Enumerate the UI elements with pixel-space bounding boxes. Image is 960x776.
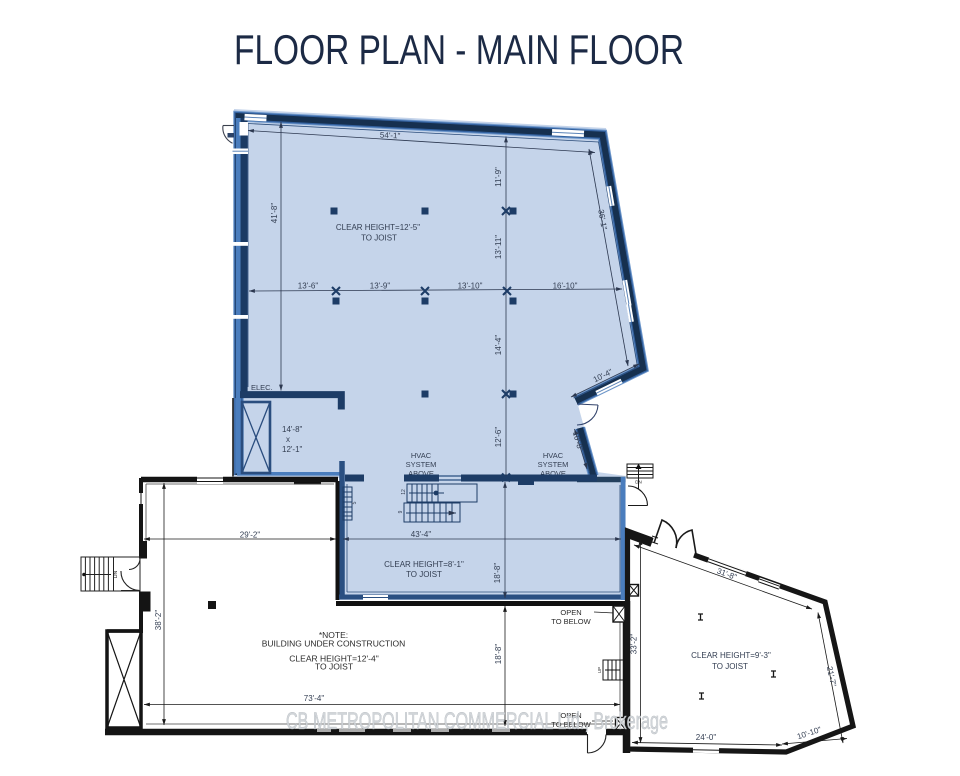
svg-text:TO JOIST: TO JOIST xyxy=(361,234,397,243)
svg-text:HVAC: HVAC xyxy=(411,451,432,460)
svg-text:9: 9 xyxy=(398,510,404,513)
svg-text:16'-10": 16'-10" xyxy=(553,282,578,291)
svg-text:DN: DN xyxy=(635,480,642,485)
svg-text:43'-4": 43'-4" xyxy=(411,530,432,539)
svg-text:TO JOIST: TO JOIST xyxy=(712,662,748,671)
svg-text:13'-11": 13'-11" xyxy=(494,235,503,259)
svg-text:54'-1": 54'-1" xyxy=(380,131,401,141)
svg-text:ELEC.: ELEC. xyxy=(251,383,273,392)
svg-text:13'-9": 13'-9" xyxy=(370,282,391,291)
svg-text:TO JOIST: TO JOIST xyxy=(315,662,353,672)
svg-text:DN: DN xyxy=(113,571,119,579)
svg-text:SYSTEM: SYSTEM xyxy=(538,460,569,469)
svg-text:FLOOR PLAN - MAIN FLOOR: FLOOR PLAN - MAIN FLOOR xyxy=(234,26,684,73)
svg-text:CB METROPOLITAN COMMERCIAL Ltd: CB METROPOLITAN COMMERCIAL Ltd., Brokera… xyxy=(286,708,668,735)
svg-text:38'-2": 38'-2" xyxy=(154,610,163,631)
svg-text:14'-8": 14'-8" xyxy=(282,425,303,434)
svg-text:29'-2": 29'-2" xyxy=(240,531,261,540)
svg-text:UP: UP xyxy=(597,667,602,673)
svg-text:13'-10": 13'-10" xyxy=(458,282,483,291)
svg-text:73'-4": 73'-4" xyxy=(304,694,325,703)
svg-text:TO JOIST: TO JOIST xyxy=(406,570,442,579)
svg-text:18'-8": 18'-8" xyxy=(493,563,502,584)
svg-text:14'-4": 14'-4" xyxy=(494,335,503,356)
svg-text:33'-2": 33'-2" xyxy=(630,634,639,655)
svg-text:CLEAR HEIGHT=9'-3": CLEAR HEIGHT=9'-3" xyxy=(691,651,771,660)
svg-text:CLEAR HEIGHT=8'-1": CLEAR HEIGHT=8'-1" xyxy=(384,560,464,569)
svg-text:12: 12 xyxy=(401,489,407,495)
svg-text:OPEN: OPEN xyxy=(560,608,581,617)
svg-text:HVAC: HVAC xyxy=(543,451,564,460)
svg-text:TO BELOW: TO BELOW xyxy=(551,617,591,626)
svg-text:CLEAR HEIGHT=12'-5": CLEAR HEIGHT=12'-5" xyxy=(336,223,420,232)
svg-text:12'-6": 12'-6" xyxy=(494,427,503,448)
svg-text:SYSTEM: SYSTEM xyxy=(406,460,437,469)
svg-text:12'-1": 12'-1" xyxy=(282,445,303,454)
svg-text:24'-0": 24'-0" xyxy=(696,733,717,742)
svg-text:41'-8": 41'-8" xyxy=(270,203,279,224)
svg-text:11'-9": 11'-9" xyxy=(494,167,503,187)
svg-text:BUILDING UNDER CONSTRUCTION: BUILDING UNDER CONSTRUCTION xyxy=(262,639,406,649)
svg-text:18'-8": 18'-8" xyxy=(494,644,503,665)
svg-text:13'-6": 13'-6" xyxy=(298,282,319,291)
svg-text:5: 5 xyxy=(352,501,358,504)
svg-text:x: x xyxy=(286,435,290,444)
